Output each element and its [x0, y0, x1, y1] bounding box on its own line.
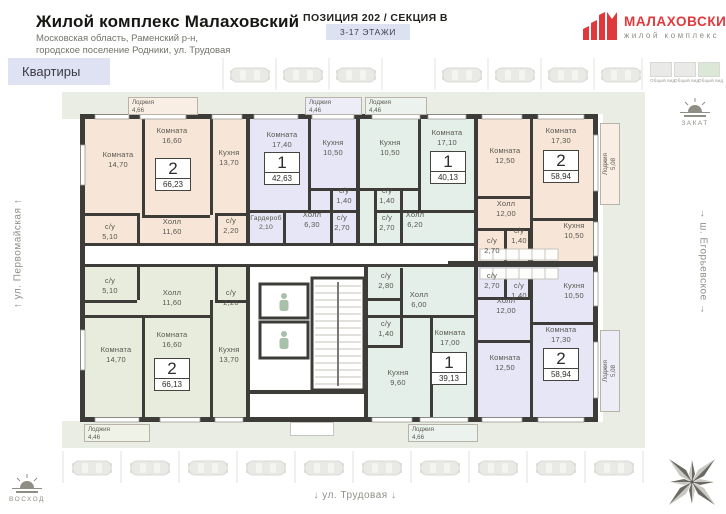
loggia: Лоджия4,66 — [408, 424, 478, 442]
room-label: с/у5,10 — [90, 222, 130, 242]
thumbnail-label: Общий вид — [698, 78, 723, 83]
room-label: с/у2,20 — [211, 288, 251, 308]
room-label: с/у2,70 — [369, 213, 405, 233]
room-label: Комната14,70 — [88, 150, 148, 170]
room-label: Комната12,50 — [475, 353, 535, 373]
page-title: Жилой комплекс Малаховский — [36, 12, 299, 32]
room-label: Кухня10,50 — [547, 281, 601, 301]
room-label: Комната17,40 — [252, 130, 312, 150]
room-label: Комната14,70 — [86, 345, 146, 365]
apartment-type-badge: 140,13 — [430, 151, 466, 184]
sunrise-label: ВОСХОД — [4, 496, 50, 503]
thumbnail-image — [650, 62, 672, 77]
room-label: с/у1,40 — [368, 319, 404, 339]
apartment-type-badge: 266,13 — [154, 358, 190, 391]
room-label: с/у2,70 — [324, 213, 360, 233]
loggia: Лоджия4,66 — [128, 97, 198, 115]
room-label: с/у5,10 — [90, 276, 130, 296]
room-label: Гардероб2,10 — [244, 214, 288, 232]
loggia: Лоджия4,46 — [365, 97, 427, 115]
tab-apartments[interactable]: Квартиры — [8, 58, 110, 85]
street-label-bottom: ↓ ул. Трудовая ↓ — [255, 490, 455, 501]
compass-icon — [662, 452, 722, 512]
parking-row-bottom — [62, 449, 644, 487]
room-label: Комната16,60 — [142, 126, 202, 146]
page: Жилой комплекс Малаховский Московская об… — [0, 0, 726, 514]
loggia: Лоджия5,08 — [600, 330, 620, 412]
room-label: Комната17,00 — [420, 328, 480, 348]
apartment-type-badge: 142,63 — [264, 152, 300, 185]
room-label: Кухня10,50 — [308, 138, 358, 158]
section-thumbnail-3[interactable]: Общий вид — [698, 62, 723, 83]
room-label: с/у2,80 — [368, 271, 404, 291]
room-label: с/у1,40 — [502, 281, 536, 301]
section-thumbnail-2[interactable]: Общий вид — [674, 62, 699, 83]
room-label: Холл12,00 — [476, 199, 536, 219]
street-label-right: → ш. Егорьевское → — [698, 152, 709, 372]
entrance-porch — [290, 422, 334, 436]
room-label: Кухня10,50 — [365, 138, 415, 158]
apartment-type-badge: 266,23 — [155, 158, 191, 191]
room-label: Комната16,60 — [142, 330, 202, 350]
room-label: Комната12,50 — [475, 146, 535, 166]
room-label: с/у1,40 — [326, 186, 362, 206]
loggia: Лоджия5,08 — [600, 123, 620, 205]
thumbnail-label: Общий вид — [650, 78, 675, 83]
position-title: ПОЗИЦИЯ 202 / СЕКЦИЯ В — [303, 12, 448, 24]
street-label-left: ↑ ул. Первомайская ↑ — [13, 154, 24, 354]
sunset-label: ЗАКАТ — [672, 120, 718, 127]
room-label: Кухня10,50 — [547, 221, 601, 241]
apartment-type-badge: 258,94 — [543, 348, 579, 381]
room-label: Комната17,30 — [531, 126, 591, 146]
parking-row-top — [222, 56, 644, 94]
room-label: Кухня13,70 — [207, 148, 251, 168]
room-label: Холл11,60 — [142, 217, 202, 237]
sunset-icon — [678, 96, 712, 118]
floors-badge: 3-17 ЭТАЖИ — [326, 24, 410, 40]
brand-logo-icon — [583, 10, 619, 42]
apartment-type-badge: 139,13 — [431, 352, 467, 385]
apartment-type-badge: 258,94 — [543, 150, 579, 183]
brand-subtitle: жилой комплекс — [624, 31, 719, 40]
loggia: Лоджия4,46 — [84, 424, 150, 442]
room-label: с/у1,40 — [502, 226, 536, 246]
section-thumbnail-1[interactable]: Общий вид — [650, 62, 675, 83]
brand-name: МАЛАХОВСКИЙ — [624, 14, 726, 29]
sunrise-icon — [10, 472, 44, 494]
thumbnail-image — [674, 62, 696, 77]
room-label: Комната17,10 — [417, 128, 477, 148]
room-label: с/у1,40 — [369, 186, 405, 206]
thumbnail-label: Общий вид — [674, 78, 699, 83]
room-label: Кухня13,70 — [207, 345, 251, 365]
thumbnail-image — [698, 62, 720, 77]
room-label: Холл6,00 — [397, 290, 441, 310]
room-label: Комната17,30 — [531, 325, 591, 345]
loggia: Лоджия4,46 — [305, 97, 362, 115]
room-label: Кухня9,60 — [374, 368, 422, 388]
address-line-2: городское поселение Родники, ул. Трудова… — [36, 44, 230, 57]
room-label: Холл11,60 — [142, 288, 202, 308]
